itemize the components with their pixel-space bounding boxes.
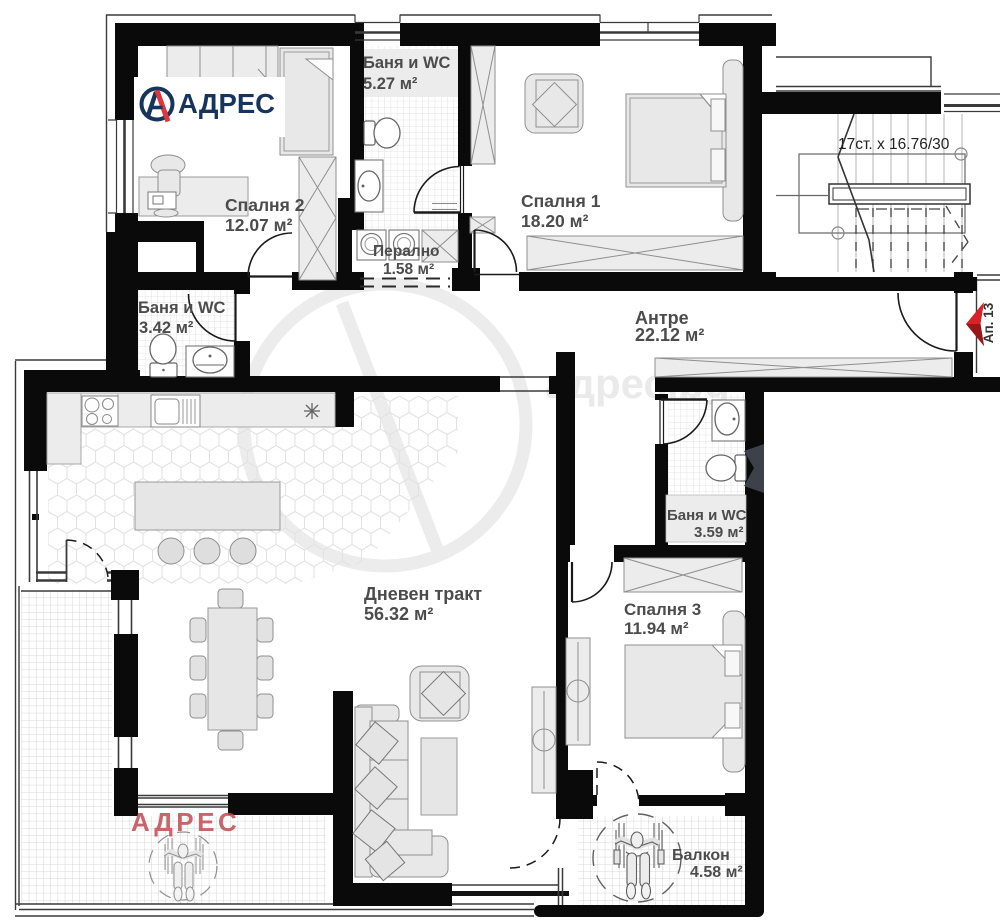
svg-text:Ап. 13: Ап. 13 bbox=[981, 302, 996, 343]
svg-text:17ст. x 16.76/30: 17ст. x 16.76/30 bbox=[838, 136, 950, 153]
svg-text:Баня и WC: Баня и WC bbox=[363, 54, 451, 72]
svg-text:Перално: Перално bbox=[373, 243, 440, 260]
svg-text:12.07 м²: 12.07 м² bbox=[225, 215, 293, 235]
svg-text:11.94 м²: 11.94 м² bbox=[624, 619, 689, 638]
svg-text:4.58 м²: 4.58 м² bbox=[690, 864, 743, 881]
svg-text:АДРЕС: АДРЕС bbox=[178, 88, 275, 119]
svg-text:Дневен тракт: Дневен тракт bbox=[364, 584, 482, 604]
svg-text:Спалня 2: Спалня 2 bbox=[225, 195, 305, 215]
svg-text:56.32 м²: 56.32 м² bbox=[364, 604, 433, 624]
svg-text:Балкон: Балкон bbox=[672, 847, 730, 864]
svg-text:1.58 м²: 1.58 м² bbox=[383, 261, 434, 278]
svg-text:Баня и WC: Баня и WC bbox=[138, 299, 226, 317]
svg-text:3.59 м²: 3.59 м² bbox=[694, 524, 743, 541]
svg-text:3.42 м²: 3.42 м² bbox=[139, 319, 194, 337]
svg-text:5.27 м²: 5.27 м² bbox=[363, 75, 418, 93]
svg-text:АДРЕС: АДРЕС bbox=[131, 807, 240, 837]
svg-text:Спалня 1: Спалня 1 bbox=[521, 191, 601, 211]
svg-text:Баня и WC: Баня и WC bbox=[667, 507, 747, 524]
svg-text:Спалня 3: Спалня 3 bbox=[624, 600, 701, 619]
svg-text:18.20 м²: 18.20 м² bbox=[521, 211, 589, 231]
svg-text:22.12 м²: 22.12 м² bbox=[635, 325, 704, 345]
